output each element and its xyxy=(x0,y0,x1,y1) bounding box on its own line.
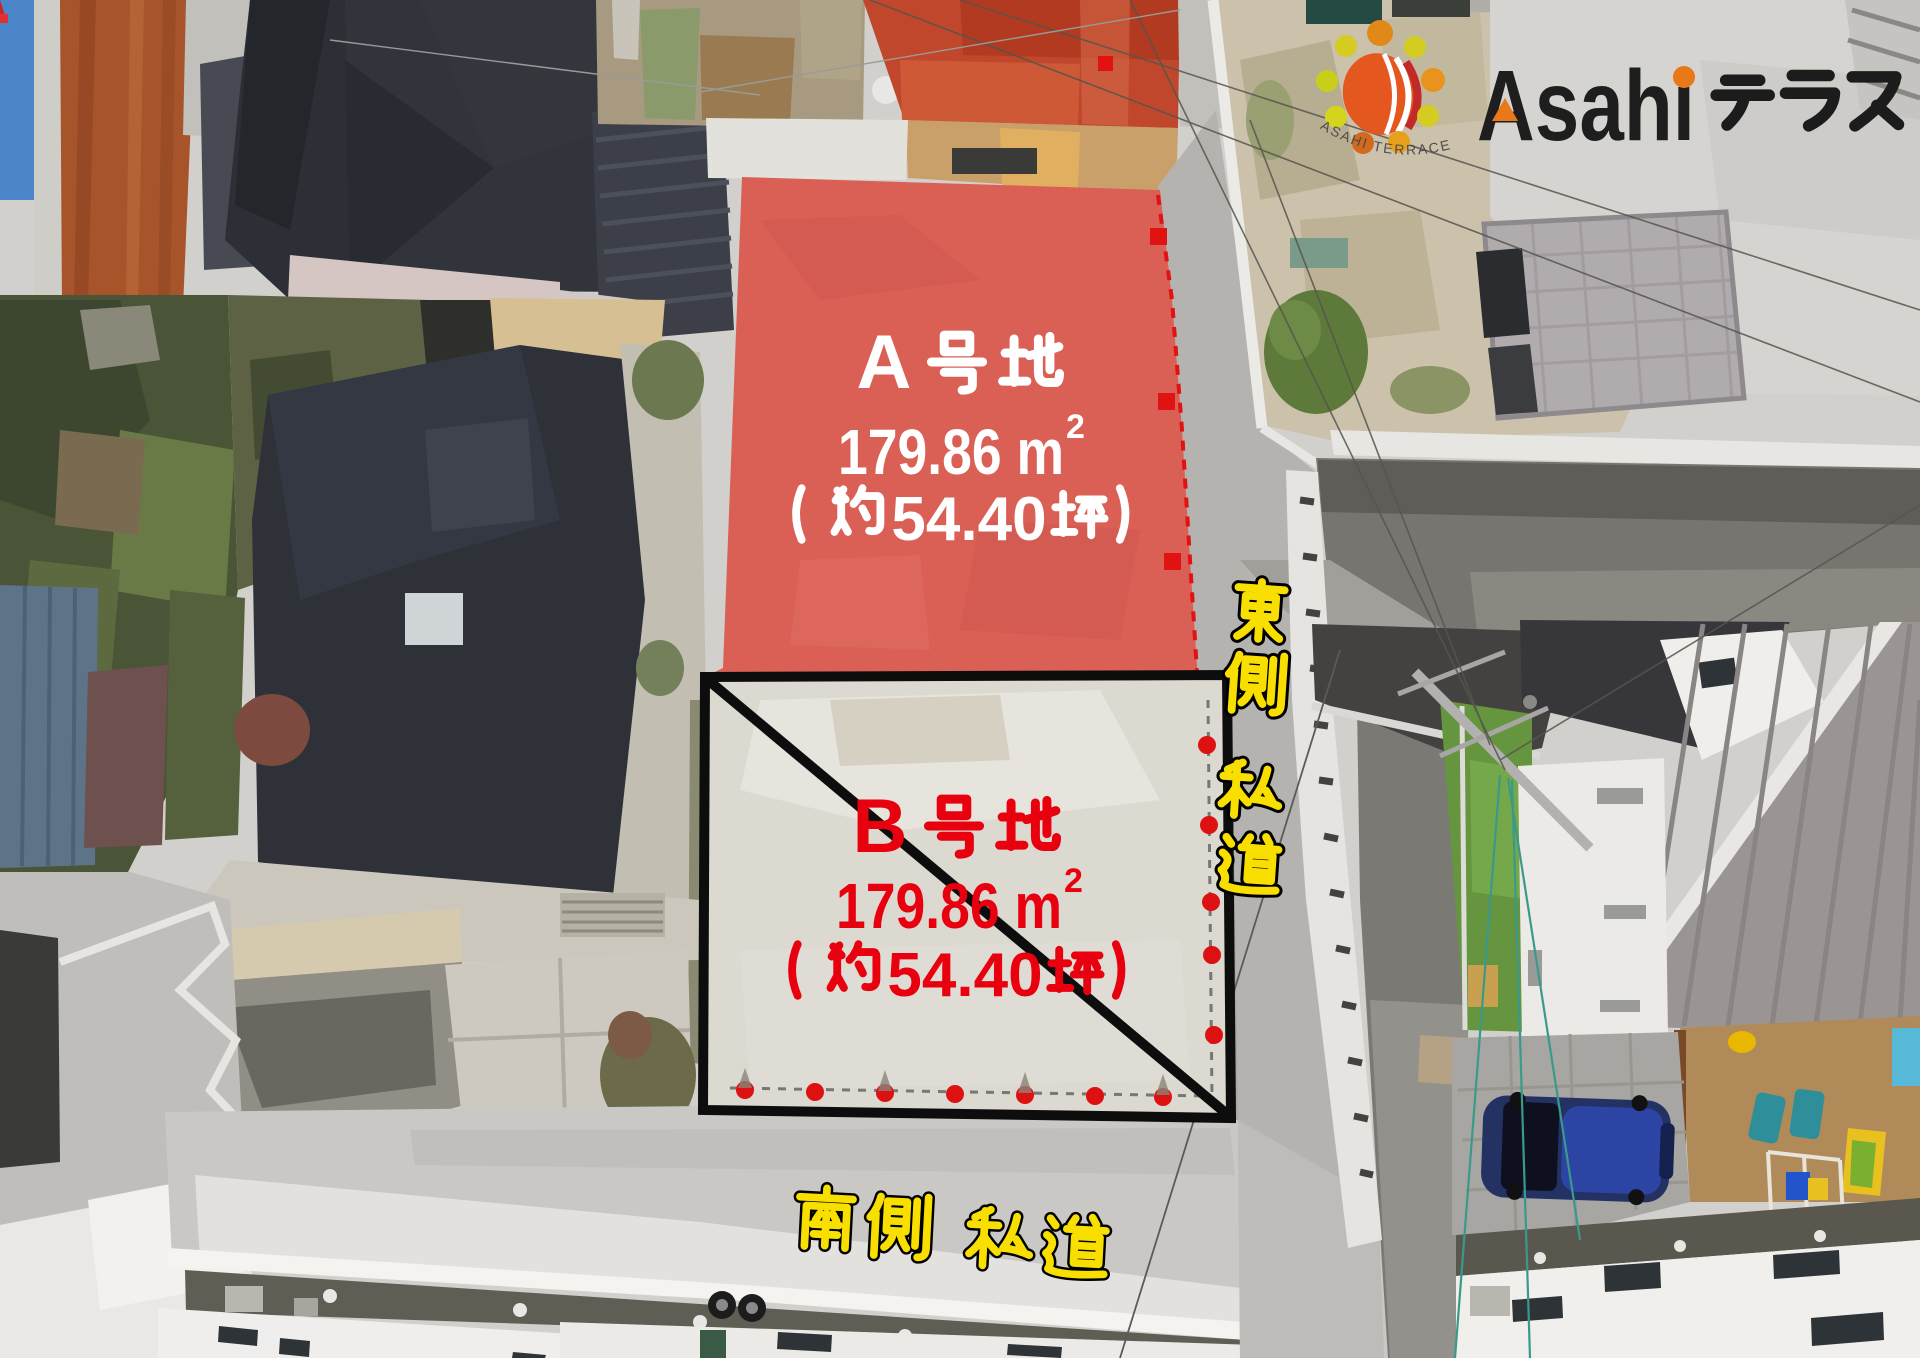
svg-text:Asahi: Asahi xyxy=(1477,50,1695,162)
svg-text:2: 2 xyxy=(1064,862,1083,900)
svg-text:179.86 m: 179.86 m xyxy=(836,870,1062,942)
svg-text:179.86 m: 179.86 m xyxy=(838,416,1064,488)
svg-text:B: B xyxy=(853,784,908,869)
svg-text:54.40: 54.40 xyxy=(891,485,1046,554)
svg-text:2: 2 xyxy=(1066,408,1085,446)
svg-text:54.40: 54.40 xyxy=(887,941,1042,1010)
svg-text:A: A xyxy=(857,320,912,405)
